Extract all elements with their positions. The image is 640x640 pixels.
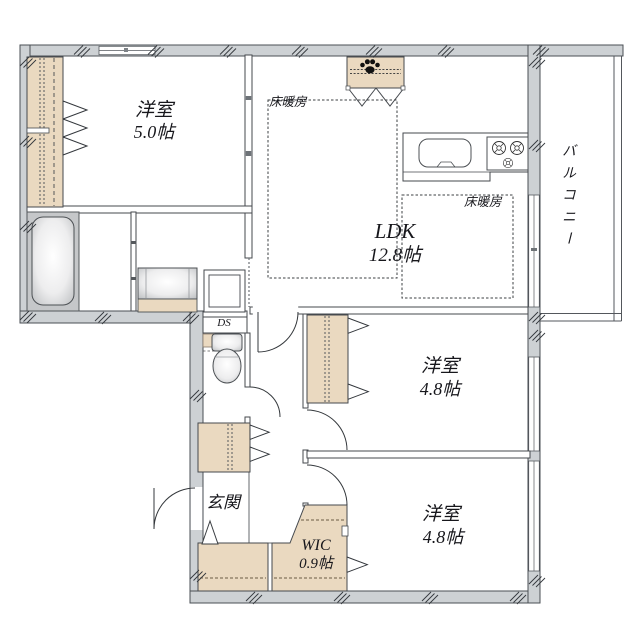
- washer-pan: [204, 270, 245, 312]
- washroom: [138, 268, 245, 312]
- floor-heating-label-dining: 床暖房: [464, 196, 502, 209]
- room-label-western3-size: 4.8帖: [423, 528, 464, 546]
- front-door-opening: [191, 487, 203, 530]
- room-label-ldk-size: 12.8帖: [369, 246, 421, 265]
- floor-plan: 洋室 5.0帖 床暖房 床暖房 LDK 12.8帖 バルコニー 洋室 4.8帖 …: [0, 0, 640, 640]
- toilet-tank: [212, 334, 242, 351]
- room-label-ldk-name: LDK: [375, 221, 416, 242]
- label-duct-space: DS: [217, 318, 230, 329]
- shoe-cabinet: [198, 543, 268, 591]
- washbasin: [138, 268, 197, 299]
- room-label-western2-size: 4.8帖: [420, 380, 461, 398]
- kitchen-sink: [419, 139, 471, 167]
- bedroom-window-lower: [529, 461, 540, 571]
- balcony-sliding-door: [529, 195, 540, 307]
- bedroom-window-upper: [529, 357, 540, 451]
- toilet-bowl: [213, 349, 241, 383]
- hall-door-opening: [253, 306, 298, 314]
- bathtub: [32, 217, 74, 305]
- top-window: [99, 46, 155, 54]
- room-label-western1-size: 5.0帖: [134, 123, 175, 141]
- room-label-wic-name: WIC: [301, 538, 330, 554]
- room-label-western1-name: 洋室: [135, 101, 173, 120]
- room-label-balcony: バルコニー: [560, 143, 574, 253]
- room-label-western2-name: 洋室: [421, 357, 459, 376]
- floor-heating-label-living: 床暖房: [269, 96, 307, 109]
- room-label-entrance: 玄関: [206, 494, 240, 511]
- bathroom: [27, 212, 79, 311]
- room-label-western3-name: 洋室: [422, 505, 460, 524]
- room-label-wic-size: 0.9帖: [299, 557, 333, 572]
